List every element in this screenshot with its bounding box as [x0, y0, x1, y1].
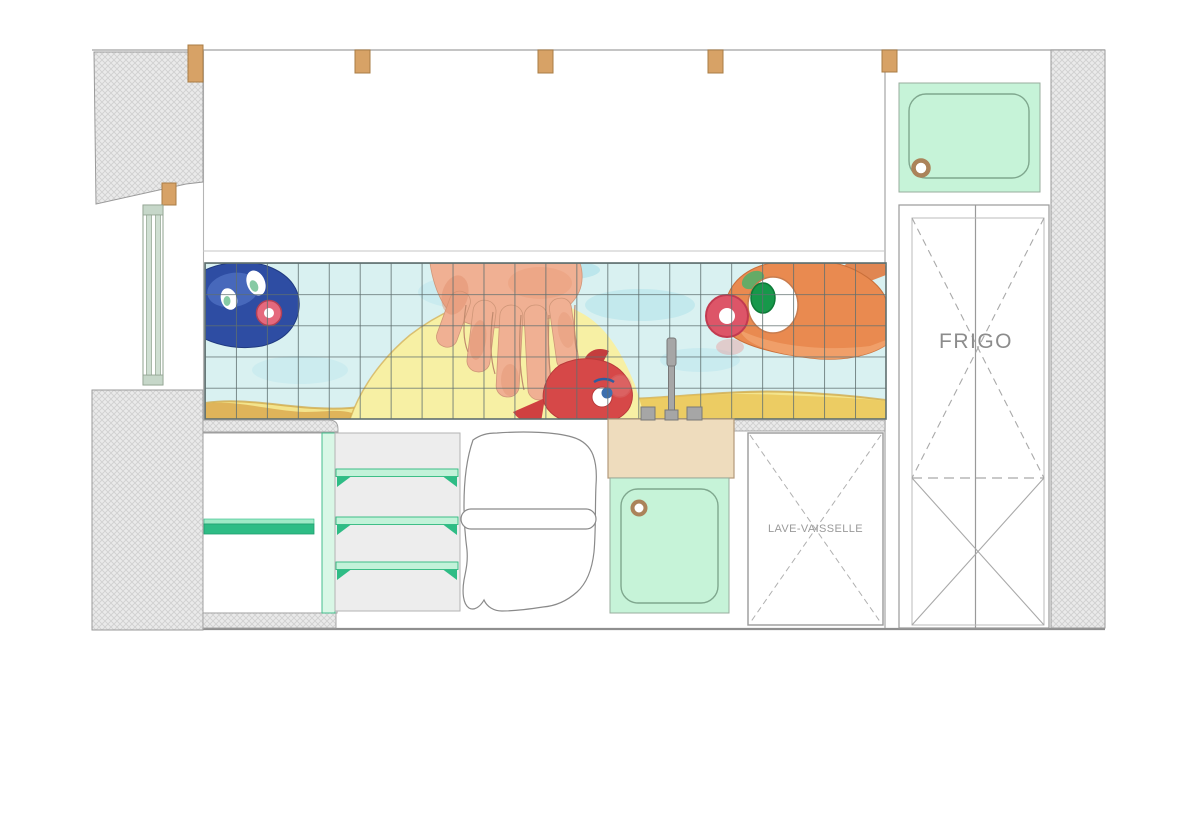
ceiling-beam	[882, 50, 897, 72]
fridge-label: FRIGO	[939, 330, 1013, 353]
ceiling-beam	[355, 50, 370, 73]
green-shelf-top	[204, 519, 314, 524]
kitchen-elevation-drawing: LAVE-VAISSELLE FRIGO	[0, 0, 1181, 835]
faucet-shaft	[669, 366, 675, 410]
chair	[461, 432, 596, 611]
left-wall-lower	[92, 390, 203, 630]
tile-grid-overlay	[205, 263, 886, 419]
plinth-section	[203, 613, 336, 628]
right-wall	[1051, 50, 1105, 628]
ceiling-beam	[188, 45, 203, 82]
window-frame	[143, 205, 163, 385]
mint-divider-panel	[322, 433, 335, 613]
sink-counter-top	[608, 419, 734, 478]
open-shelving-unit	[335, 433, 460, 611]
sink-unit	[608, 419, 734, 613]
countertop-section-left	[203, 420, 338, 432]
faucet-handle-right	[687, 407, 702, 420]
dishwasher: LAVE-VAISSELLE	[748, 433, 883, 625]
ceiling-beam	[708, 50, 723, 73]
overhead-tray-fixture	[899, 83, 1040, 192]
frame-mullion	[147, 215, 152, 375]
faucet-base	[665, 410, 678, 420]
frame-top-cap	[143, 205, 163, 215]
green-shelf	[204, 524, 314, 534]
sink-basin	[610, 478, 729, 613]
left-wall-upper	[94, 52, 203, 205]
wood-post	[162, 183, 176, 205]
faucet-upper	[667, 338, 676, 366]
chair-band	[461, 509, 596, 529]
elevation-svg: LAVE-VAISSELLE FRIGO	[0, 0, 1181, 835]
base-cabinet-left	[203, 433, 337, 628]
wall-section-hatch	[94, 52, 203, 204]
countertop-section-right	[734, 420, 885, 431]
frame-mullion	[156, 215, 161, 375]
tile-mural	[204, 252, 886, 432]
tray-drain	[914, 161, 929, 176]
dishwasher-label: LAVE-VAISSELLE	[768, 523, 863, 535]
ceiling-beam	[538, 50, 553, 73]
faucet-handle-left	[641, 407, 655, 420]
basin-drain	[633, 502, 646, 515]
frame-bottom-cap	[143, 375, 163, 385]
fridge-cabinet: FRIGO	[899, 205, 1049, 628]
